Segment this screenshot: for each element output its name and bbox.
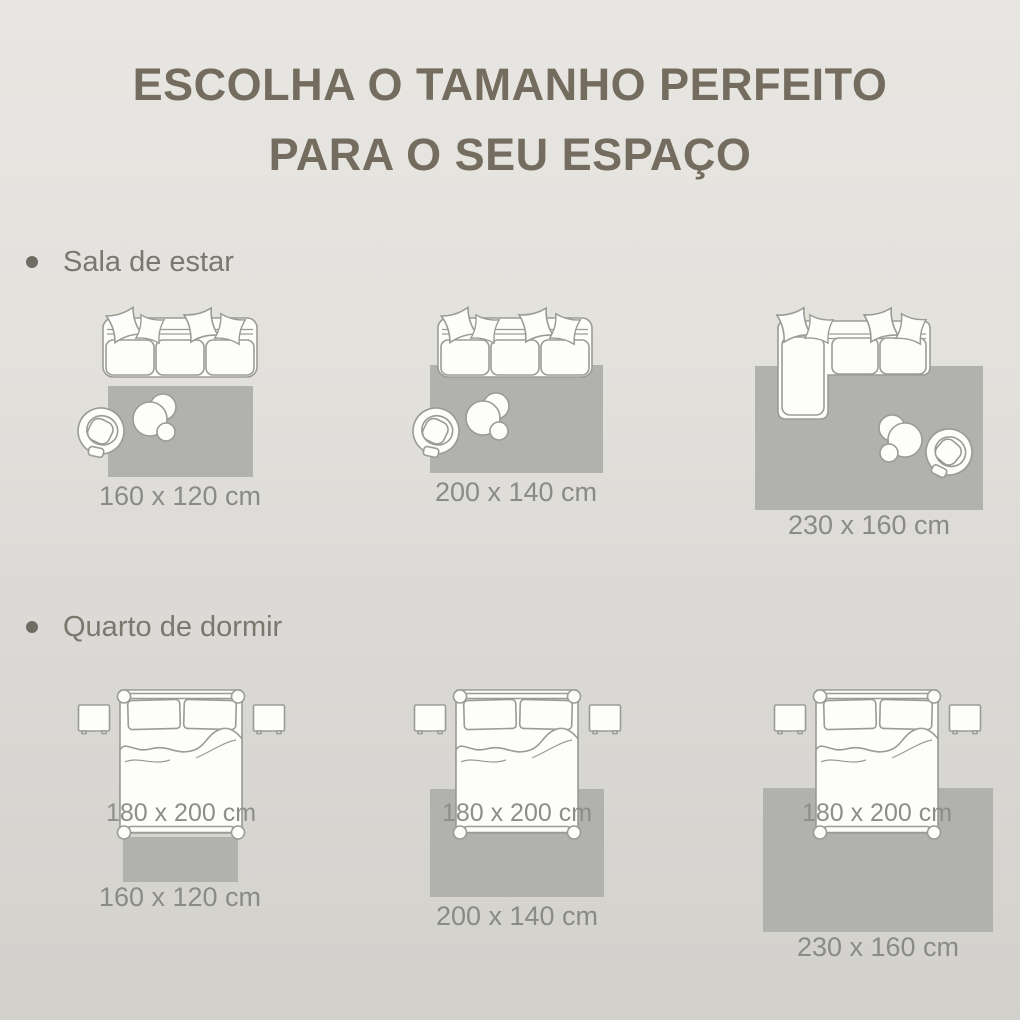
living-room-diagram-200x140 (395, 290, 615, 490)
bedroom-diagram-200x140 (395, 665, 635, 915)
rug-shape (123, 837, 238, 882)
rug-size-label: 160 x 120 cm (80, 882, 280, 913)
bed-size-label: 180 x 200 cm (81, 799, 281, 828)
sofa-top-view-icon (103, 307, 257, 377)
bullet-icon (26, 256, 38, 268)
page-title: ESCOLHA O TAMANHO PERFEITO PARA O SEU ES… (0, 50, 1020, 190)
bullet-icon (26, 621, 38, 633)
bed-size-label: 180 x 200 cm (777, 799, 977, 828)
page-title-line-2: PARA O SEU ESPAÇO (0, 120, 1020, 190)
rug-size-label: 160 x 120 cm (80, 481, 280, 512)
rug-size-label: 200 x 140 cm (417, 901, 617, 932)
rug-size-guide-infographic: ESCOLHA O TAMANHO PERFEITO PARA O SEU ES… (0, 0, 1020, 1020)
bed-size-label: 180 x 200 cm (417, 799, 617, 828)
rug-size-label: 200 x 140 cm (416, 477, 616, 508)
living-room-diagram-160x120 (60, 290, 280, 490)
section-label: Quarto de dormir (63, 611, 282, 644)
page-title-line-1: ESCOLHA O TAMANHO PERFEITO (0, 50, 1020, 120)
section-label: Sala de estar (63, 246, 234, 279)
living-room-diagram-230x160 (735, 290, 1015, 525)
section-header-living-room: Sala de estar (26, 244, 234, 280)
sofa-top-view-icon (438, 307, 592, 377)
section-header-bedroom: Quarto de dormir (26, 609, 282, 645)
bedroom-diagram-160x120 (60, 665, 300, 900)
rug-size-label: 230 x 160 cm (778, 932, 978, 963)
rug-shape (108, 386, 253, 477)
rug-size-label: 230 x 160 cm (769, 510, 969, 541)
